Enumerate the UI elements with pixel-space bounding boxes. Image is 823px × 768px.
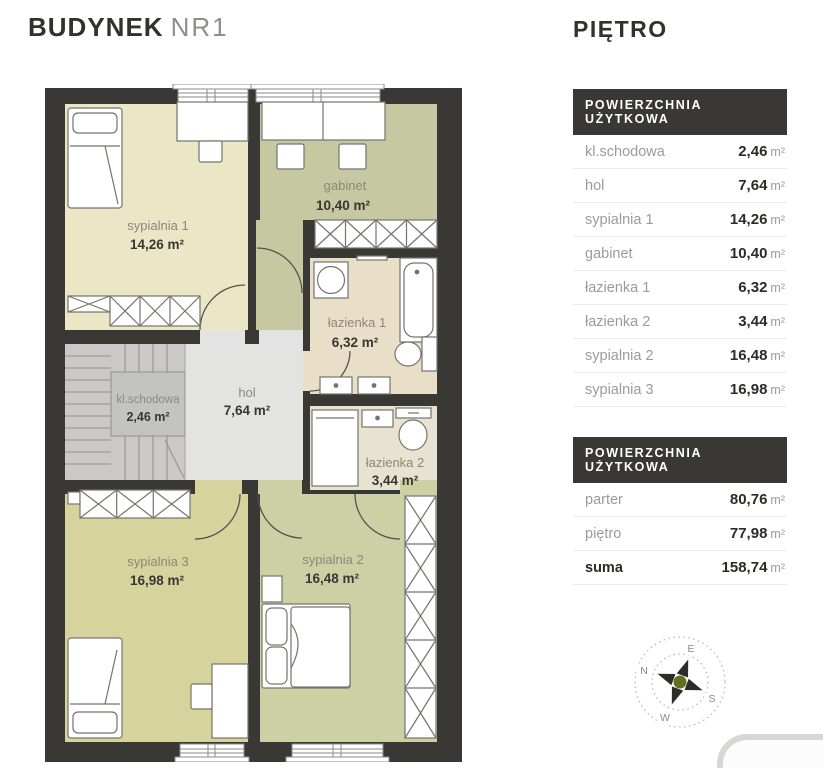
corner-widget-button[interactable] [717, 734, 823, 768]
row-label: łazienka 2 [585, 314, 650, 330]
table-row: łazienka 1 6,32m² [573, 271, 787, 305]
room-area: 7,64 m² [224, 403, 271, 418]
compass-s: S [708, 693, 715, 705]
row-label: parter [585, 492, 623, 508]
row-label: suma [585, 560, 623, 576]
row-value: 3,44m² [738, 313, 785, 331]
area-table-pietro: POWIERZCHNIA UŻYTKOWA kl.schodowa 2,46m²… [573, 89, 787, 407]
compass-n: N [640, 665, 648, 677]
shower-icon [312, 410, 358, 486]
row-value: 77,98m² [730, 525, 785, 543]
room-area: 14,26 m² [130, 237, 185, 252]
row-value: 16,98m² [730, 381, 785, 399]
row-value: 2,46m² [738, 143, 785, 161]
row-label: hol [585, 178, 604, 194]
compass-w: W [660, 712, 670, 724]
room-area: 16,48 m² [305, 571, 360, 586]
room-name: łazienka 2 [366, 455, 425, 470]
compass-e: E [687, 643, 694, 655]
room-gabinet-passage [256, 220, 303, 330]
sink-icon [358, 377, 390, 394]
row-value: 7,64m² [738, 177, 785, 195]
room-area: 10,40 m² [316, 198, 371, 213]
wardrobe-icon [315, 220, 437, 248]
table-row: sypialnia 3 16,98m² [573, 373, 787, 407]
building-title: BUDYNEKNR1 [28, 12, 229, 43]
row-value: 10,40m² [730, 245, 785, 263]
building-title-number: NR1 [171, 12, 229, 42]
row-label: piętro [585, 526, 621, 542]
wardrobe-icon [405, 496, 436, 738]
table-row: piętro 77,98m² [573, 517, 787, 551]
table-row: parter 80,76m² [573, 483, 787, 517]
table-row: łazienka 2 3,44m² [573, 305, 787, 339]
row-value: 14,26m² [730, 211, 785, 229]
room-name: gabinet [324, 178, 367, 193]
room-area: 2,46 m² [126, 410, 169, 424]
wardrobe-icon [68, 490, 190, 518]
compass-center-dot [674, 676, 687, 689]
shelf-icon [357, 256, 387, 260]
table-row: sypialnia 1 14,26m² [573, 203, 787, 237]
row-label: gabinet [585, 246, 633, 262]
row-label: sypialnia 1 [585, 212, 654, 228]
table-row-total: suma 158,74m² [573, 551, 787, 585]
double-bed-icon [262, 604, 350, 688]
room-name: sypialnia 2 [302, 552, 363, 567]
floor-heading: PIĘTRO [573, 16, 668, 43]
room-name: sypialnia 3 [127, 554, 188, 569]
room-area: 3,44 m² [372, 473, 419, 488]
row-value: 16,48m² [730, 347, 785, 365]
row-value: 80,76m² [730, 491, 785, 509]
floor-plan-drawing: sypialnia 1 14,26 m² gabinet 10,40 m² ła… [45, 84, 462, 762]
row-value: 6,32m² [738, 279, 785, 297]
bed-icon [68, 638, 122, 738]
table-header: POWIERZCHNIA UŻYTKOWA [573, 437, 787, 483]
row-label: sypialnia 3 [585, 382, 654, 398]
bed-icon [68, 108, 122, 208]
room-name: sypialnia 1 [127, 218, 188, 233]
table-row: gabinet 10,40m² [573, 237, 787, 271]
room-area: 16,98 m² [130, 573, 185, 588]
room-name: kl.schodowa [116, 394, 180, 406]
row-label: kl.schodowa [585, 144, 665, 160]
room-name: hol [238, 385, 255, 400]
area-table-totals: POWIERZCHNIA UŻYTKOWA parter 80,76m² pię… [573, 437, 787, 585]
table-row: sypialnia 2 16,48m² [573, 339, 787, 373]
bathtub-icon [400, 258, 437, 342]
row-value: 158,74m² [722, 559, 785, 577]
sink-icon [320, 377, 352, 394]
washing-machine-icon [314, 262, 348, 298]
table-row: kl.schodowa 2,46m² [573, 135, 787, 169]
table-row: hol 7,64m² [573, 169, 787, 203]
table-header: POWIERZCHNIA UŻYTKOWA [573, 89, 787, 135]
building-title-bold: BUDYNEK [28, 12, 164, 42]
row-label: łazienka 1 [585, 280, 650, 296]
room-area: 6,32 m² [332, 335, 379, 350]
nightstand-icon [262, 576, 282, 602]
sink-icon [362, 410, 393, 427]
room-name: łazienka 1 [328, 315, 387, 330]
floor-plan: sypialnia 1 14,26 m² gabinet 10,40 m² ła… [45, 84, 462, 762]
compass-icon: E N S W [622, 628, 742, 748]
row-label: sypialnia 2 [585, 348, 654, 364]
